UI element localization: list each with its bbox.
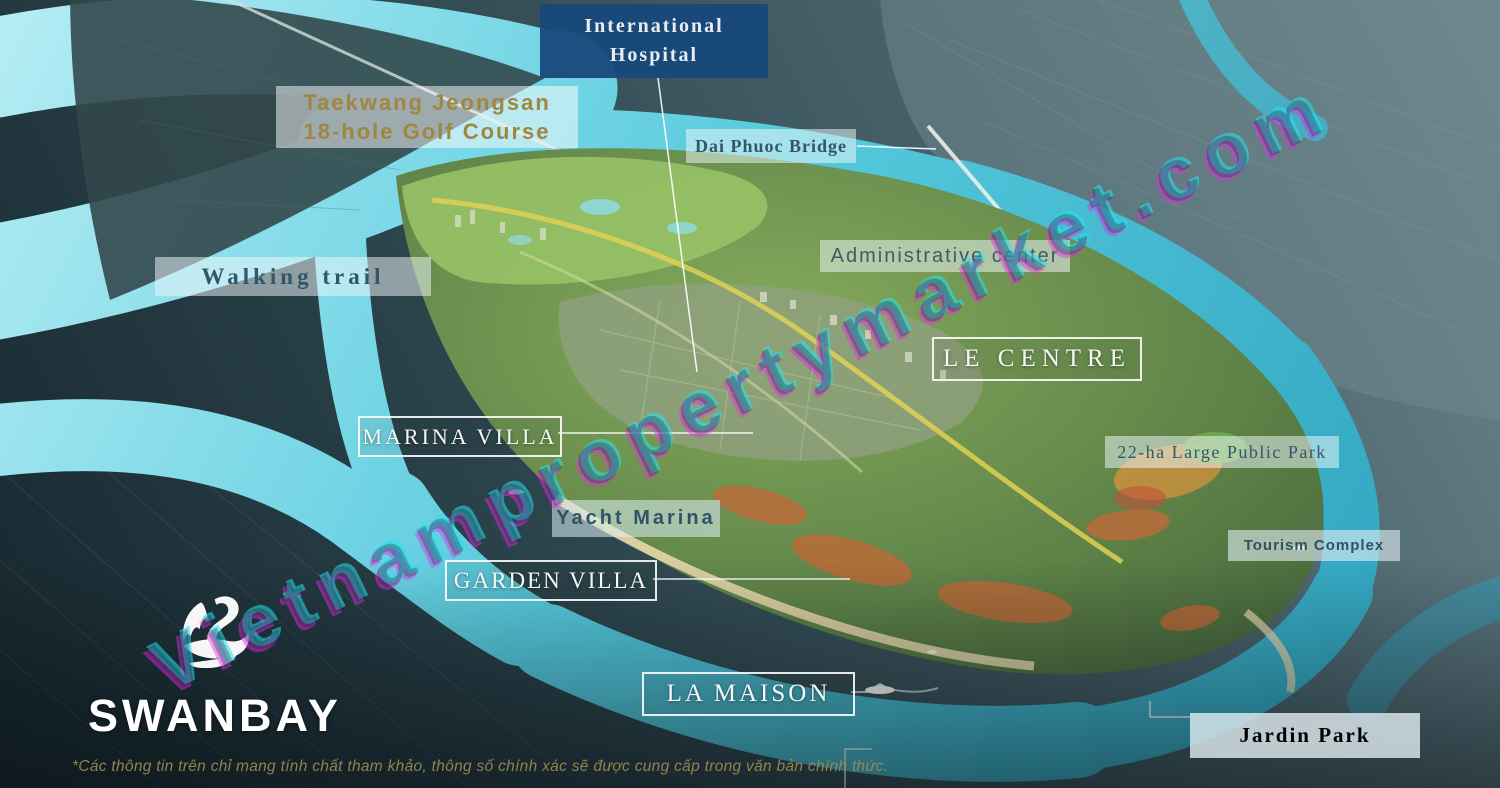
- masterplan-image: International Hospital Taekwang Jeongsan…: [0, 0, 1500, 788]
- label-golf-course: Taekwang Jeongsan 18-hole Golf Course: [276, 86, 578, 148]
- label-walking-trail: Walking trail: [155, 257, 431, 296]
- label-line: International: [584, 12, 723, 41]
- label-garden-villa: GARDEN VILLA: [445, 560, 657, 601]
- label-tourism-complex: Tourism Complex: [1228, 530, 1400, 561]
- label-dai-phuoc-bridge: Dai Phuoc Bridge: [686, 129, 856, 163]
- label-line: Hospital: [610, 41, 698, 70]
- label-line: 18-hole Golf Course: [303, 117, 550, 146]
- label-jardin-park: Jardin Park: [1190, 713, 1420, 758]
- label-international-hospital: International Hospital: [540, 4, 768, 78]
- label-la-maison: LA MAISON: [642, 672, 855, 716]
- label-public-park: 22-ha Large Public Park: [1105, 436, 1339, 468]
- swanbay-logo-text: SWANBAY: [88, 690, 338, 742]
- disclaimer-text: *Các thông tin trên chỉ mang tính chất t…: [72, 758, 892, 776]
- label-le-centre: LE CENTRE: [932, 337, 1142, 381]
- label-line: Taekwang Jeongsan: [303, 88, 551, 117]
